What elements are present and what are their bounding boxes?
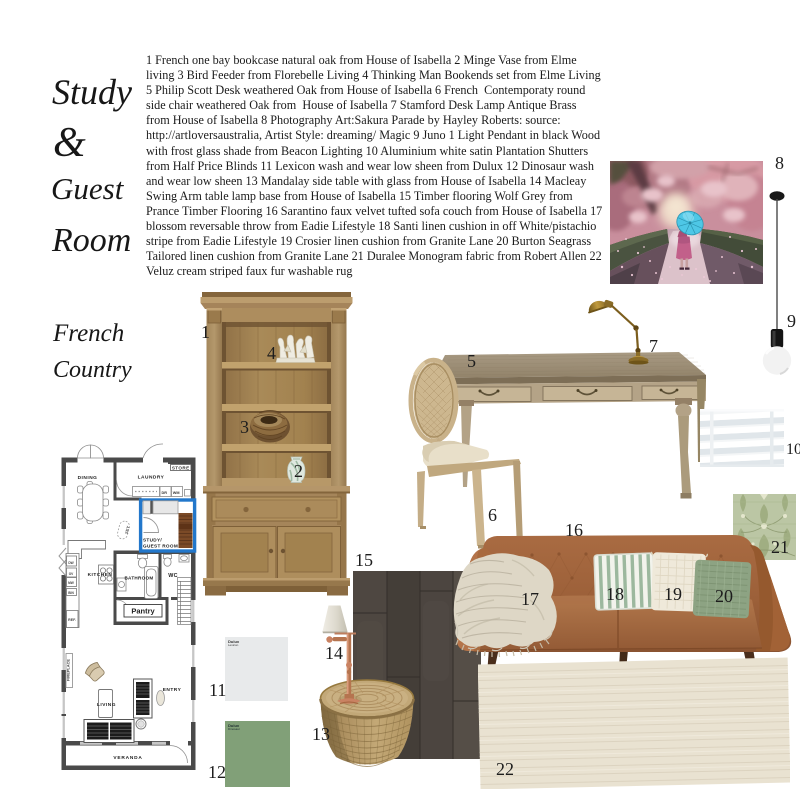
svg-text:KITCHEN: KITCHEN [88,572,113,578]
svg-text:MW: MW [68,581,74,585]
svg-text:DINING: DINING [78,475,98,481]
svg-text:WM: WM [173,491,180,495]
svg-text:ENTRY: ENTRY [163,687,182,693]
svg-text:Pantry: Pantry [131,607,155,616]
svg-text:FIREPLACE: FIREPLACE [66,659,71,681]
svg-text:LAUNDRY: LAUNDRY [138,475,165,481]
svg-text:VERANDA: VERANDA [113,755,142,761]
svg-text:REF.: REF. [68,618,76,622]
svg-text:DR: DR [162,491,168,495]
svg-text:SKY: SKY [124,525,131,535]
svg-text:STUDY/: STUDY/ [143,538,162,543]
svg-text:WC: WC [168,573,178,579]
svg-text:BATHROOM: BATHROOM [124,576,153,581]
svg-text:DW: DW [68,561,73,565]
svg-text:STORE: STORE [172,466,190,471]
svg-text:LIVING: LIVING [97,702,116,708]
svg-text:BIN: BIN [68,591,74,595]
svg-text:GUEST ROOM: GUEST ROOM [143,544,178,549]
